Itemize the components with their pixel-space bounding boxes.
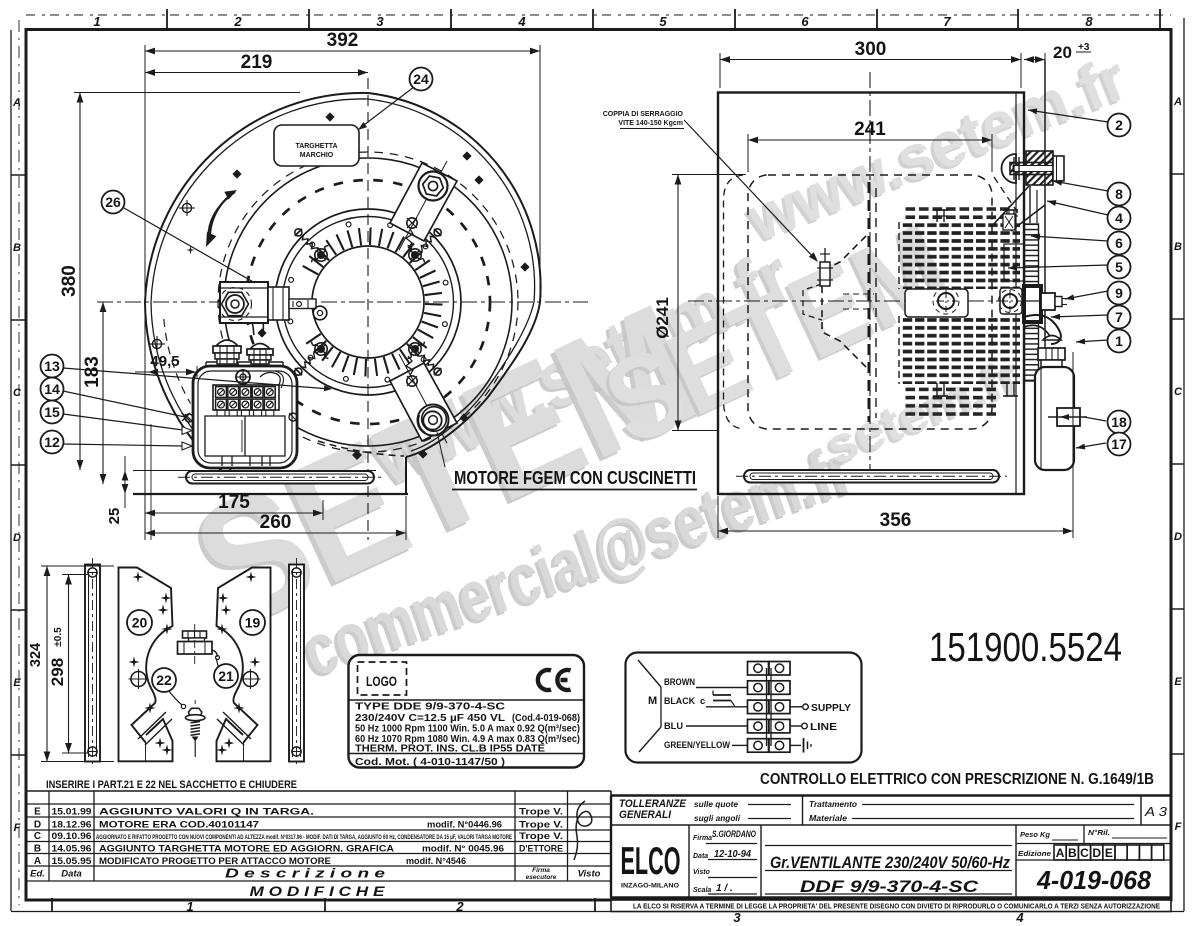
svg-text:20: 20	[1053, 43, 1072, 62]
svg-text:Visto: Visto	[578, 869, 601, 880]
svg-text:151900.5524: 151900.5524	[929, 624, 1122, 670]
svg-text:5: 5	[659, 14, 667, 29]
svg-text:17: 17	[1111, 436, 1127, 452]
svg-text:2: 2	[233, 14, 242, 29]
svg-text:183: 183	[82, 356, 103, 388]
svg-text:12-10-94: 12-10-94	[714, 848, 751, 860]
svg-text:+3: +3	[1078, 42, 1090, 53]
svg-text:LA ELCO SI RISERVA A TERMINE D: LA ELCO SI RISERVA A TERMINE DI LEGGE LA…	[633, 904, 1160, 911]
svg-text:TYPE DDE 9/9-370-4-SC: TYPE DDE 9/9-370-4-SC	[355, 701, 506, 713]
svg-text:D: D	[1174, 531, 1182, 543]
svg-text:380: 380	[59, 265, 80, 297]
svg-text:12: 12	[44, 434, 60, 450]
svg-text:E: E	[1105, 846, 1113, 860]
svg-text:324: 324	[28, 643, 44, 667]
svg-text:Firma: Firma	[532, 867, 550, 874]
svg-text:4: 4	[517, 14, 526, 29]
svg-text:219: 219	[241, 52, 273, 73]
svg-text:AGGIORNATO E RIFATTO PROGETTO: AGGIORNATO E RIFATTO PROGETTO CON NUOVI …	[96, 833, 512, 841]
svg-text:A: A	[1056, 846, 1065, 860]
svg-text:6: 6	[801, 14, 809, 29]
svg-text:230/240V C=12.5 µF 450 VL: 230/240V C=12.5 µF 450 VL	[355, 713, 505, 724]
svg-text:CONTROLLO ELETTRICO CON PRESCR: CONTROLLO ELETTRICO CON PRESCRIZIONE N. …	[760, 771, 1154, 788]
svg-text:300: 300	[855, 39, 887, 60]
svg-text:7: 7	[1115, 309, 1123, 325]
svg-text:8: 8	[1115, 186, 1123, 202]
svg-text:D e s c r i z i o n e: D e s c r i z i o n e	[225, 866, 385, 881]
svg-text:D: D	[1092, 846, 1101, 860]
svg-text:2: 2	[1115, 117, 1123, 133]
svg-text:18.12.96: 18.12.96	[52, 820, 92, 831]
svg-text:GENERALI: GENERALI	[619, 809, 672, 821]
svg-text:DDF 9/9-370-4-SC: DDF 9/9-370-4-SC	[800, 877, 979, 896]
svg-text:E: E	[13, 677, 21, 689]
svg-text:392: 392	[327, 30, 359, 51]
svg-text:Trope V.: Trope V.	[519, 820, 563, 831]
svg-text:A 3: A 3	[1144, 804, 1168, 819]
svg-text:C: C	[1174, 386, 1183, 398]
svg-text:24: 24	[413, 71, 429, 87]
svg-text:7: 7	[943, 14, 951, 29]
svg-text:Edizione: Edizione	[1018, 849, 1051, 858]
svg-text:298: 298	[48, 658, 67, 686]
svg-text:Data: Data	[693, 853, 708, 860]
svg-text:B: B	[1068, 846, 1077, 860]
svg-text:A: A	[12, 97, 21, 109]
svg-text:Ed.: Ed.	[30, 869, 45, 880]
svg-text:15.05.95: 15.05.95	[52, 856, 93, 867]
svg-text:D'ETTORE: D'ETTORE	[519, 843, 563, 854]
svg-text:Trope V.: Trope V.	[519, 807, 563, 818]
svg-text:4-019-068: 4-019-068	[1036, 865, 1151, 895]
svg-text:Materiale: Materiale	[809, 814, 848, 823]
svg-text:MOTORE FGEM CON CUSCINETTI: MOTORE FGEM CON CUSCINETTI	[454, 468, 696, 488]
svg-text:1: 1	[93, 14, 100, 29]
svg-text:5: 5	[1115, 259, 1123, 275]
svg-text:3: 3	[376, 14, 384, 29]
svg-text:8: 8	[1085, 14, 1093, 29]
svg-text:Scala: Scala	[693, 887, 711, 894]
svg-text:SUPPLY: SUPPLY	[811, 702, 851, 714]
svg-text:Cod. Mot. ( 4-010-1147/50 ): Cod. Mot. ( 4-010-1147/50 )	[355, 757, 505, 768]
svg-text:241: 241	[854, 119, 886, 140]
svg-text:modif. N°4546: modif. N°4546	[406, 856, 466, 867]
svg-text:4: 4	[1115, 210, 1123, 226]
svg-text:1: 1	[1115, 333, 1123, 349]
svg-text:AGGIUNTO VALORI Q IN TARGA.: AGGIUNTO VALORI Q IN TARGA.	[99, 807, 314, 818]
svg-text:22: 22	[156, 672, 172, 688]
svg-text:GREEN/YELLOW: GREEN/YELLOW	[664, 740, 730, 751]
svg-text:TARGHETTA: TARGHETTA	[295, 143, 337, 150]
svg-text:E: E	[1174, 676, 1182, 688]
svg-text:25: 25	[106, 508, 123, 525]
svg-text:356: 356	[880, 510, 912, 531]
svg-text:VITE 140-150 Kgcm: VITE 140-150 Kgcm	[618, 120, 683, 127]
svg-text:Trattamento: Trattamento	[809, 800, 857, 809]
svg-text:1 / .: 1 / .	[716, 883, 733, 894]
svg-text:15.01.99: 15.01.99	[52, 807, 92, 818]
svg-text:MOTORE ERA COD.40101147: MOTORE ERA COD.40101147	[99, 820, 259, 831]
svg-text:AGGIUNTO TARGHETTA MOTORE ED A: AGGIUNTO TARGHETTA MOTORE ED AGGIORN. GR…	[99, 843, 394, 854]
svg-text:A: A	[34, 856, 41, 867]
svg-text:49,5: 49,5	[150, 353, 179, 370]
svg-text:260: 260	[260, 512, 292, 533]
svg-text:20: 20	[132, 615, 148, 631]
svg-text:Gr.VENTILANTE 230/240V 50/60-H: Gr.VENTILANTE 230/240V 50/60-Hz	[770, 853, 1010, 872]
svg-text:M: M	[648, 695, 657, 707]
svg-text:19: 19	[245, 615, 261, 631]
svg-text:D: D	[34, 820, 41, 831]
svg-text:INZAGO-MILANO: INZAGO-MILANO	[621, 883, 679, 890]
svg-text:F: F	[14, 822, 21, 834]
svg-text:09.10.96: 09.10.96	[52, 831, 92, 842]
svg-text:modif. N° 0045.96: modif. N° 0045.96	[422, 843, 504, 854]
svg-text:1: 1	[186, 899, 193, 914]
svg-text:C: C	[13, 387, 22, 399]
svg-text:B: B	[1174, 241, 1182, 253]
svg-text:13: 13	[44, 358, 60, 374]
svg-text:BLU: BLU	[664, 721, 683, 732]
svg-text:50 Hz 1000 Rpm 1100 Win. 5.0: 50 Hz 1000 Rpm 1100 Win. 5.0 A max 0.92 …	[355, 724, 580, 735]
svg-text:COPPIA DI SERRAGGIO: COPPIA DI SERRAGGIO	[603, 111, 684, 118]
svg-text:sulle quote: sulle quote	[694, 800, 739, 809]
svg-text:BLACK: BLACK	[664, 696, 695, 707]
svg-text:LOGO: LOGO	[366, 673, 397, 689]
svg-text:S.GIORDANO: S.GIORDANO	[712, 829, 756, 839]
svg-text:c: c	[700, 696, 705, 707]
svg-text:14: 14	[44, 381, 60, 397]
svg-text:15: 15	[44, 404, 60, 420]
svg-text:Ø241: Ø241	[653, 297, 672, 339]
svg-text:ELCO: ELCO	[621, 840, 681, 883]
svg-text:±0.5: ±0.5	[53, 627, 64, 647]
svg-text:2: 2	[455, 899, 464, 914]
svg-text:9: 9	[1115, 285, 1123, 301]
svg-text:Visto: Visto	[693, 869, 711, 876]
svg-text:N°Ril.: N°Ril.	[1088, 828, 1110, 837]
svg-text:C: C	[1080, 846, 1089, 860]
svg-text:F: F	[1175, 821, 1182, 833]
svg-text:14.05.96: 14.05.96	[52, 843, 92, 854]
svg-text:18: 18	[1111, 414, 1127, 430]
svg-text:sugli angoli: sugli angoli	[694, 814, 741, 823]
svg-text:A: A	[1173, 96, 1182, 108]
svg-text:Peso Kg: Peso Kg	[1020, 830, 1050, 839]
svg-text:21: 21	[218, 668, 234, 684]
svg-text:MARCHIO: MARCHIO	[300, 152, 334, 159]
svg-text:175: 175	[218, 492, 250, 513]
svg-text:LINE: LINE	[810, 721, 837, 733]
svg-text:Firma: Firma	[693, 835, 712, 842]
svg-text:(Cod.4-019-068): (Cod.4-019-068)	[512, 713, 580, 724]
svg-text:6: 6	[1115, 235, 1123, 251]
svg-text:INSERIRE I PART.21 E 22 NEL SA: INSERIRE I PART.21 E 22 NEL SACCHETTO E …	[46, 779, 297, 791]
svg-text:Trope V.: Trope V.	[519, 831, 563, 842]
svg-text:E: E	[34, 807, 41, 818]
svg-text:esecutore: esecutore	[526, 874, 557, 881]
svg-text:B: B	[13, 242, 21, 254]
svg-text:modif. N°0446.96: modif. N°0446.96	[427, 820, 502, 831]
svg-text:26: 26	[105, 194, 121, 210]
svg-text:BROWN: BROWN	[664, 677, 695, 688]
svg-text:C: C	[34, 831, 41, 842]
svg-text:Data: Data	[61, 869, 82, 880]
svg-text:B: B	[34, 843, 41, 854]
svg-text:M O D I F I C H E: M O D I F I C H E	[250, 883, 386, 899]
svg-text:D: D	[13, 532, 21, 544]
